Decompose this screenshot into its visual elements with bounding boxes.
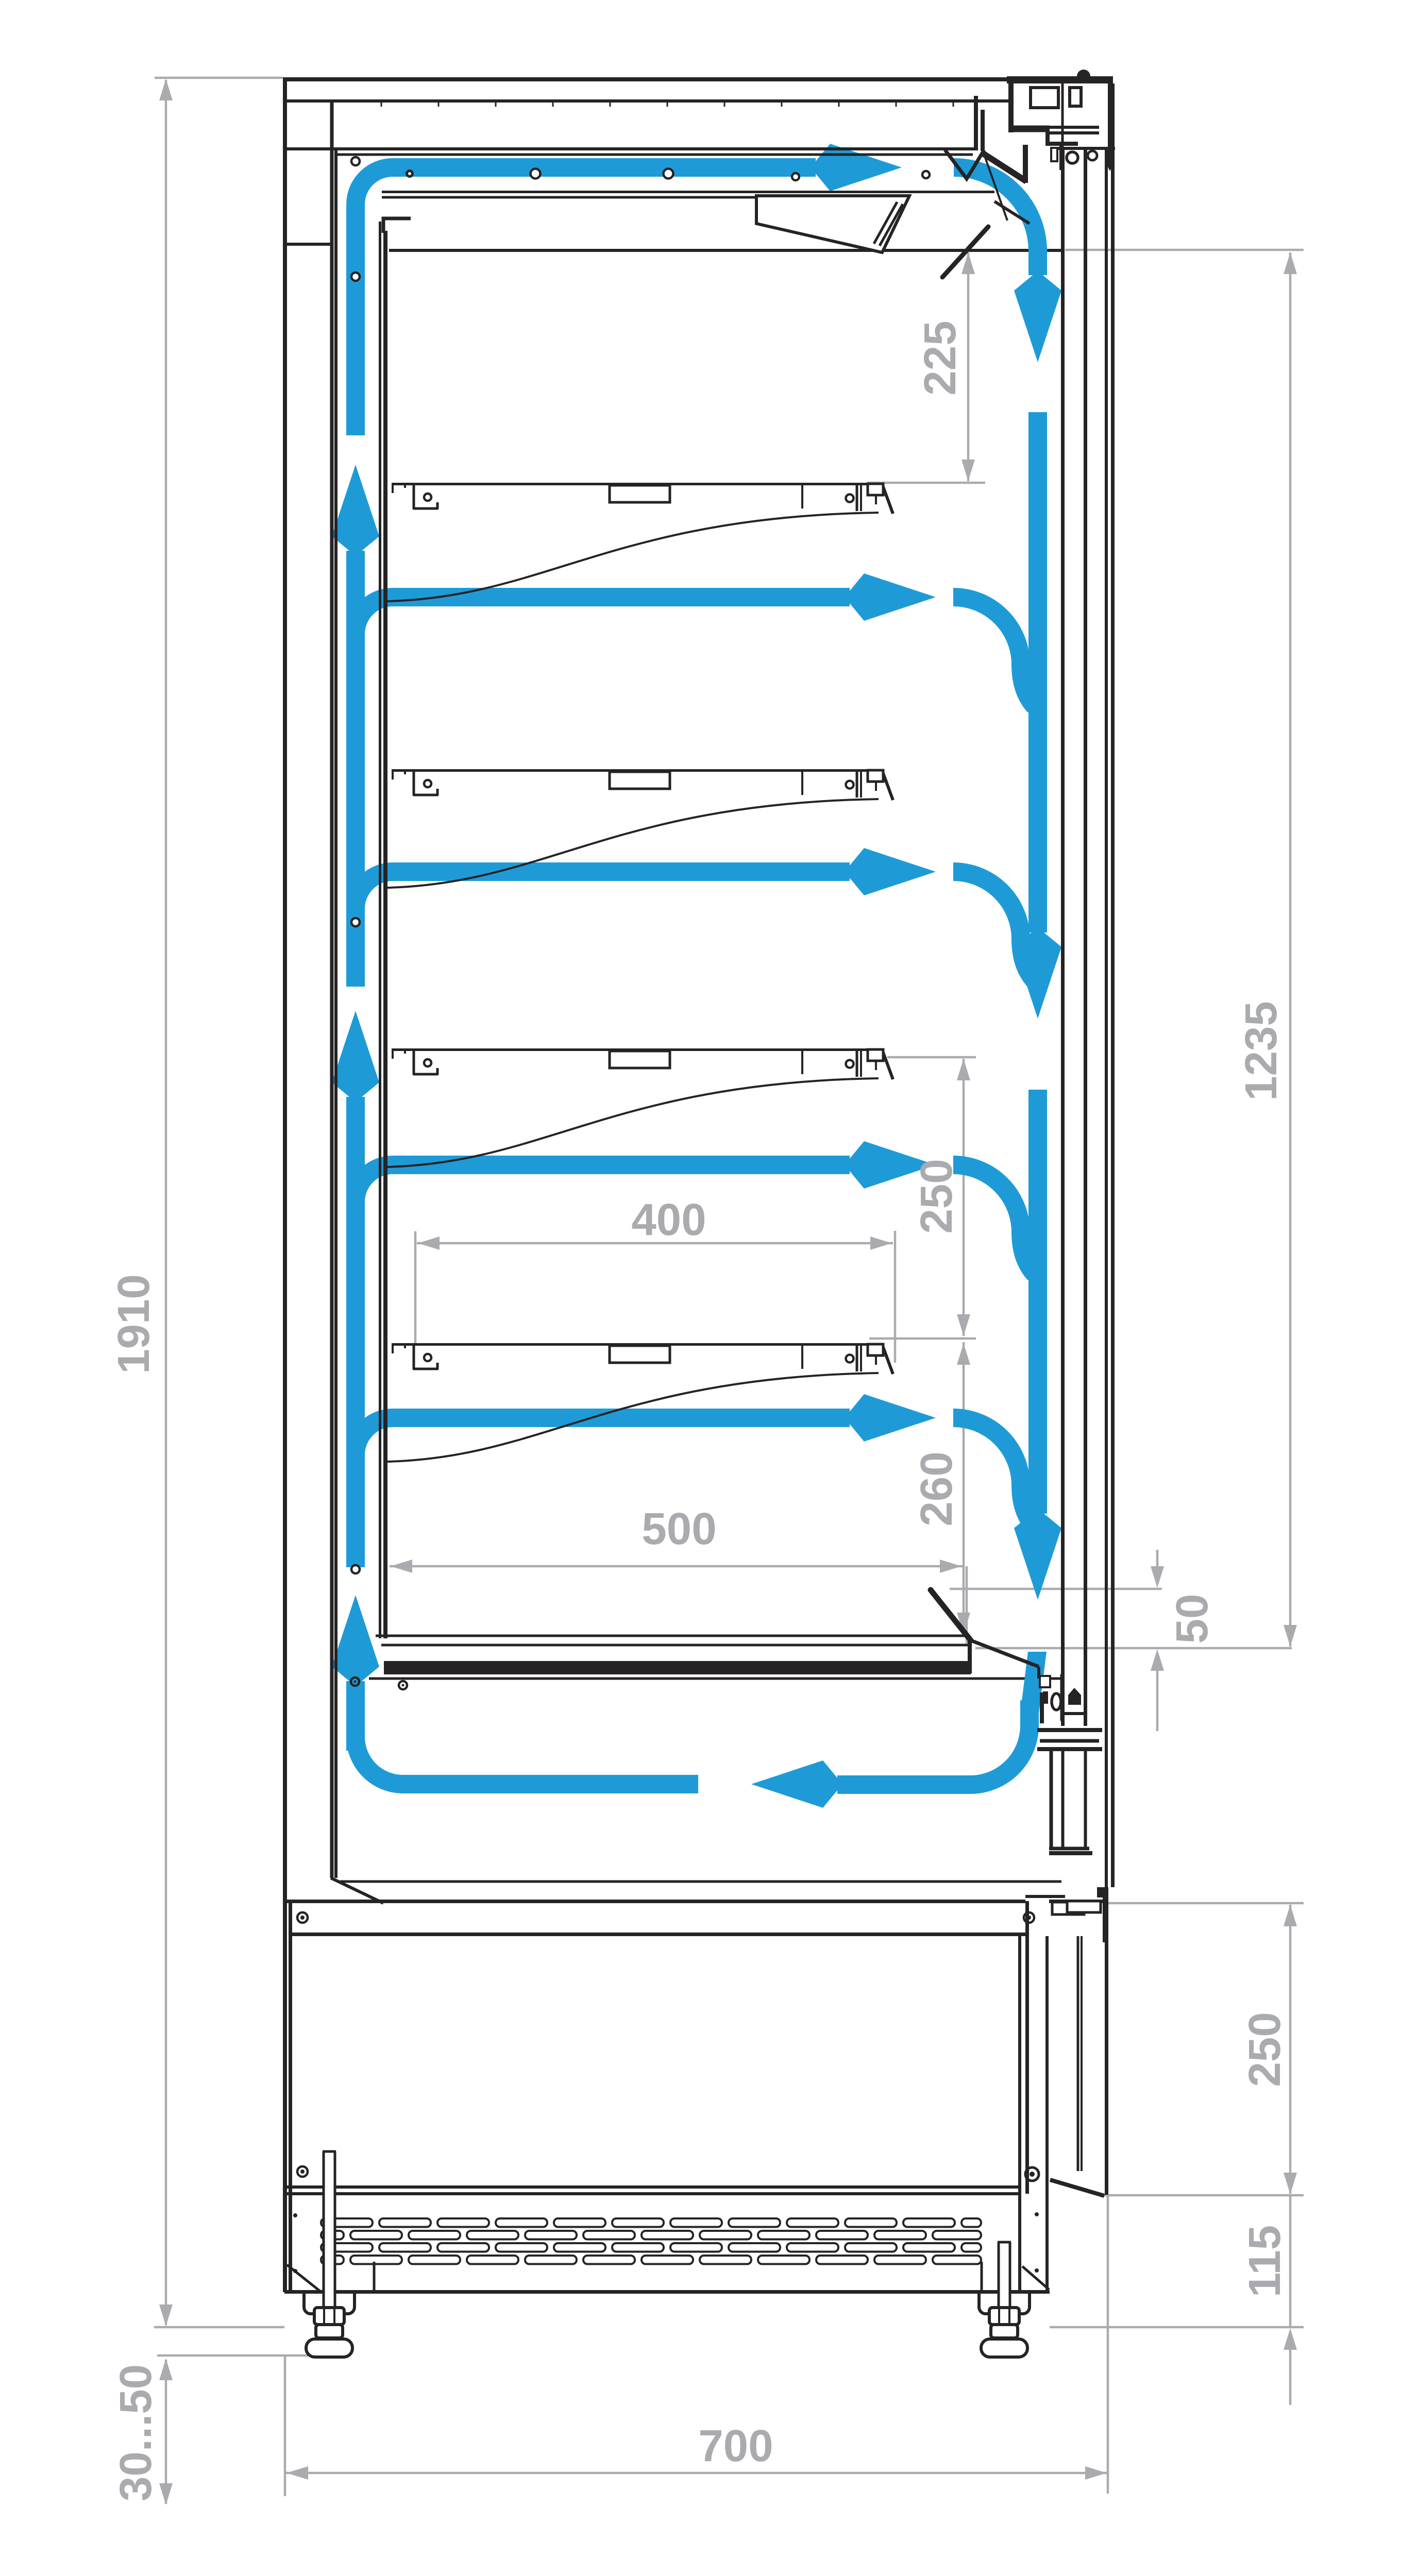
svg-text:400: 400 (631, 1195, 706, 1245)
svg-text:225: 225 (915, 320, 965, 395)
svg-text:115: 115 (1240, 2225, 1290, 2297)
svg-text:1910: 1910 (109, 1274, 159, 1374)
svg-text:260: 260 (912, 1451, 961, 1526)
svg-text:250: 250 (1240, 2012, 1290, 2087)
svg-text:30...50: 30...50 (111, 2364, 161, 2501)
svg-text:50: 50 (1167, 1594, 1217, 1644)
svg-text:250: 250 (912, 1159, 961, 1233)
svg-text:1235: 1235 (1236, 1001, 1286, 1101)
svg-text:500: 500 (642, 1504, 716, 1554)
svg-text:700: 700 (698, 2421, 773, 2471)
